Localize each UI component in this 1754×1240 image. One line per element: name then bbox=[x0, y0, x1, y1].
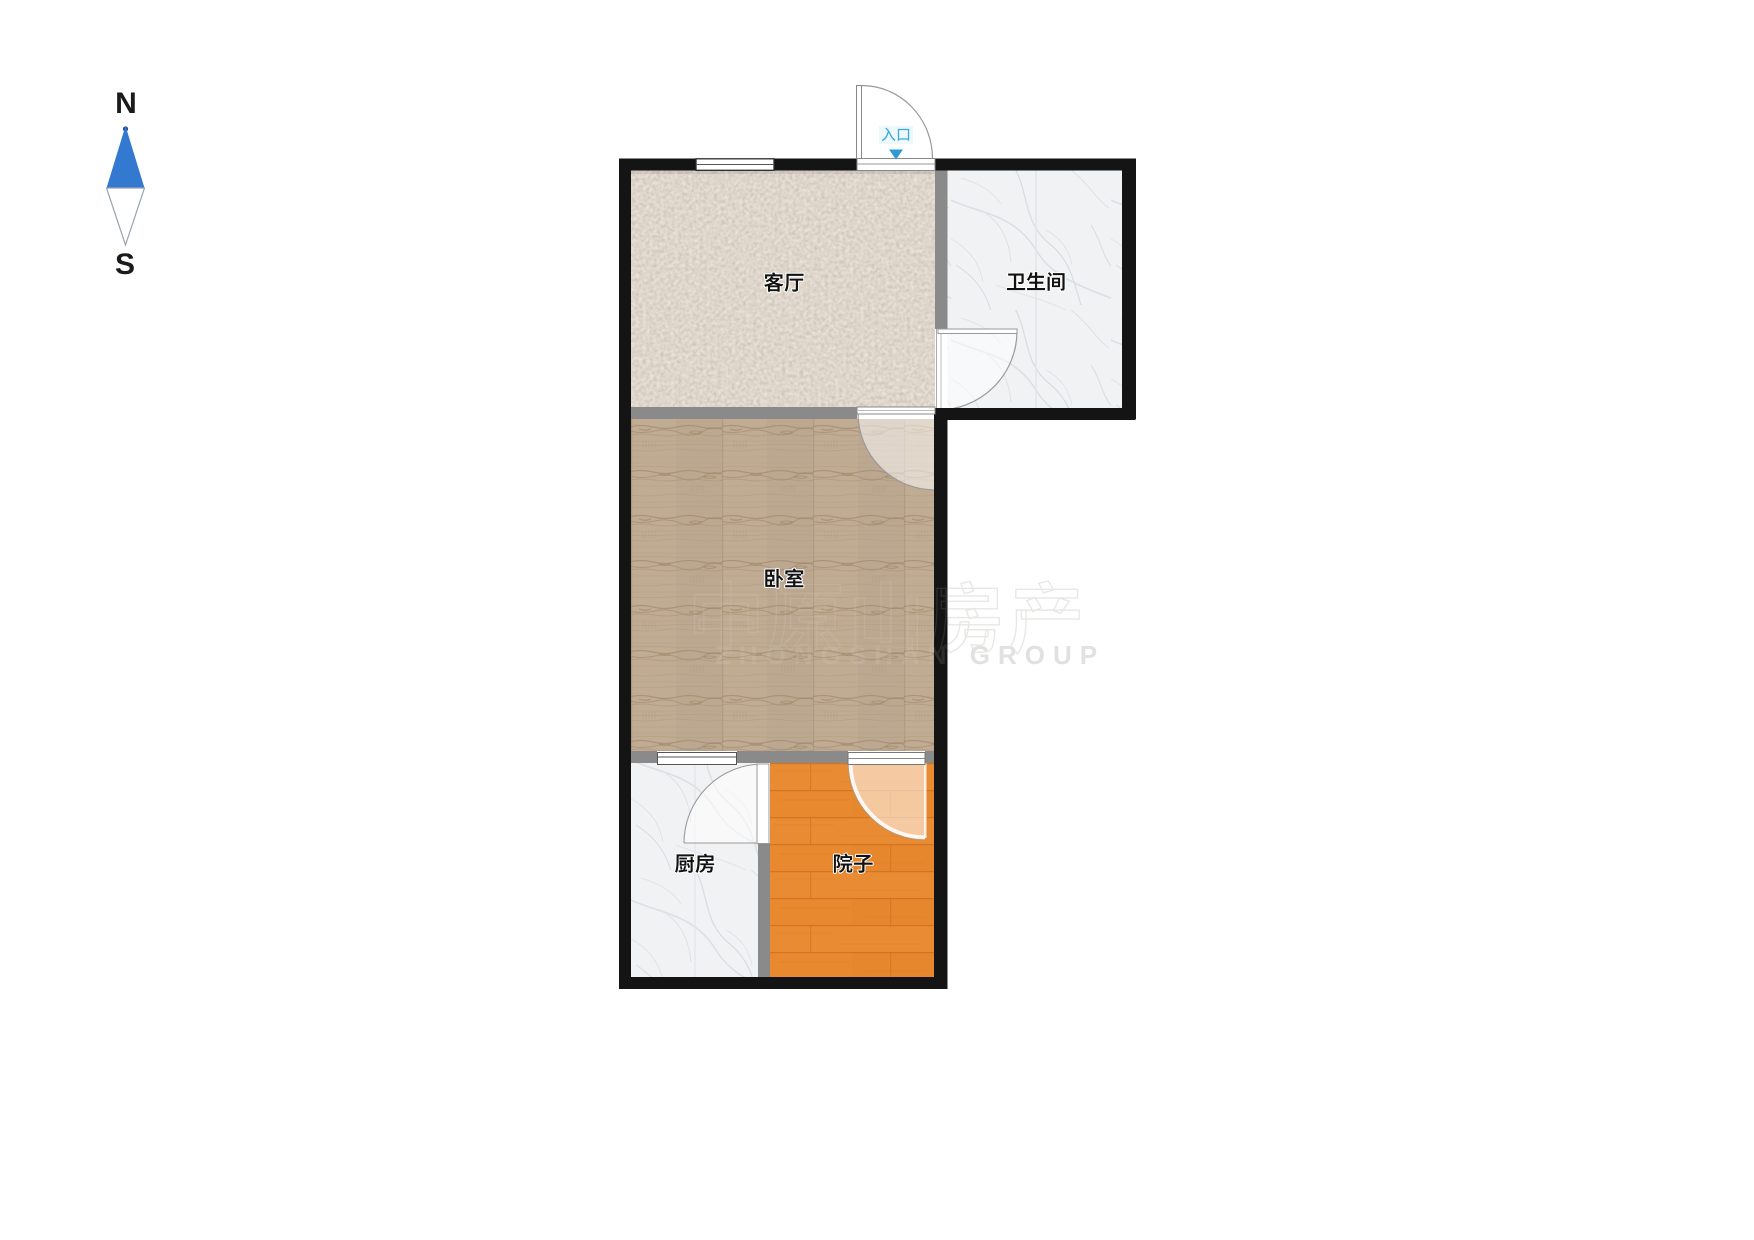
svg-text:N: N bbox=[115, 87, 137, 120]
svg-text:S: S bbox=[115, 248, 135, 281]
